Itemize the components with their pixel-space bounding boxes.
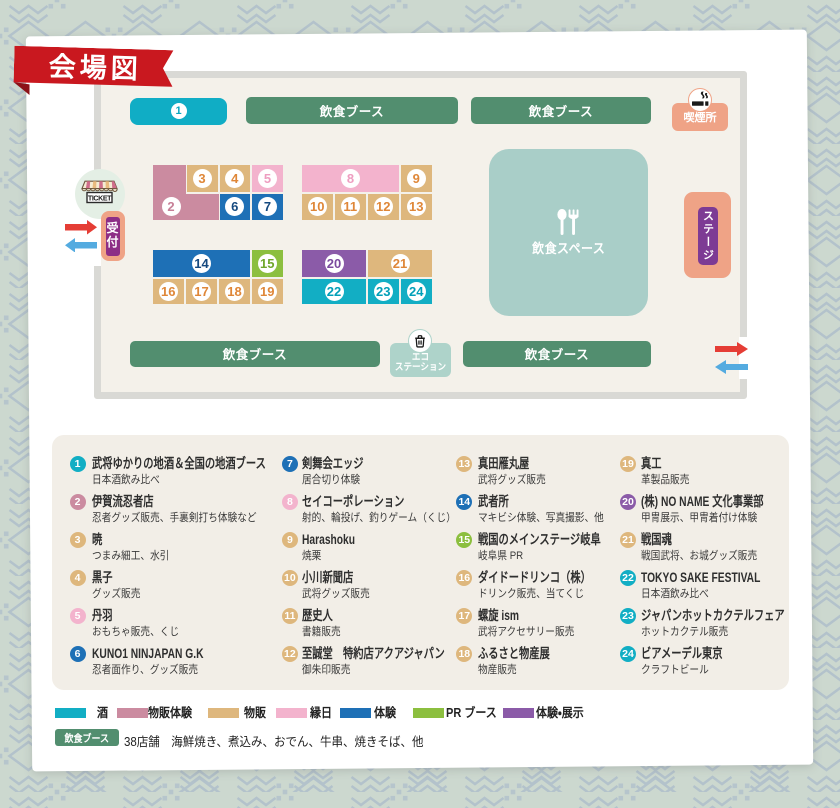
svg-text:TICKET: TICKET [88, 194, 112, 202]
